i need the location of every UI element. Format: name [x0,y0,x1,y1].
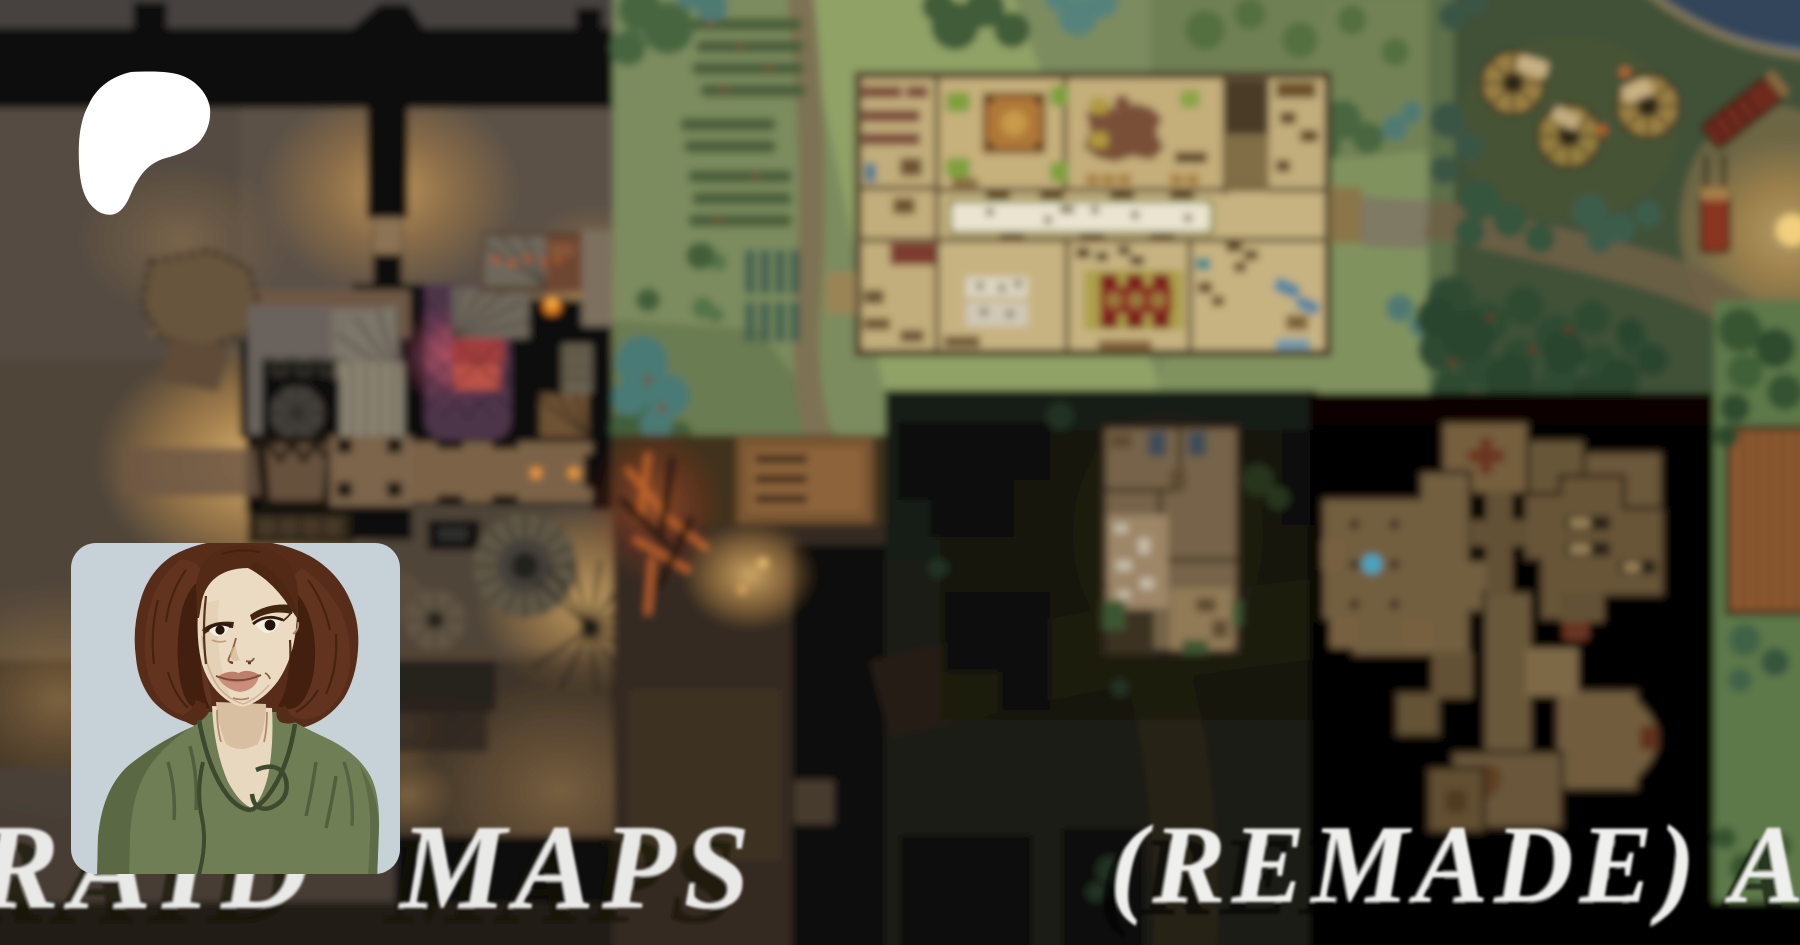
svg-text:MAPS: MAPS [398,800,758,935]
svg-text:(REMADE) A: (REMADE) A [1110,803,1800,927]
